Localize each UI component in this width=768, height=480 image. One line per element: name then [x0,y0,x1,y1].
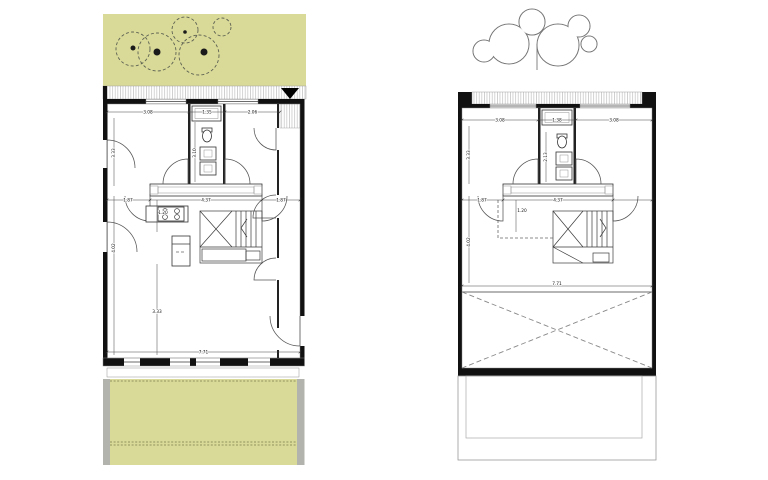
dim-core-height: 2.13 [543,152,549,162]
dim-lower-height: 4.02 [111,243,117,253]
tree-outline [473,9,597,70]
garden-bottom [110,379,297,465]
plot-outline [458,376,656,460]
sink [200,147,216,160]
door-arc [254,128,276,150]
interior-outline-upper [462,108,652,368]
dim-mid-center: 4.37 [553,198,563,204]
dimensions-ground-floor: 3.08 1.35 2.06 3.33 3.10 1.87 4.37 1.87 … [106,110,302,356]
void-double-height [462,292,652,368]
partition-band [150,184,262,196]
deck-end-wall [103,86,107,99]
hall-wall [277,104,279,358]
dim-living-height: 3.33 [152,309,162,315]
ground-floor-plan: 3.08 1.35 2.06 3.33 3.10 1.87 4.37 1.87 … [103,14,306,465]
door-arc [163,159,188,184]
tree-trunk-dot [201,49,208,56]
dim-room-height: 3.33 [466,150,472,160]
dim-mid-depth: 1.20 [158,210,168,216]
bathroom-core [188,104,226,184]
dim-core-height: 3.10 [192,148,198,158]
kitchen [146,206,190,266]
dim-lower-height: 4.02 [466,237,472,247]
interior-outline [108,104,301,358]
tree-trunk-dot [183,30,187,34]
sink [556,167,572,180]
entry-hall-deck [280,104,300,128]
layout-guide-dashed [498,200,553,238]
dim-mid-left: 1.87 [477,198,487,204]
threshold [107,368,299,377]
upper-floor-plan: 3.08 1.38 3.08 3.33 2.13 1.87 4.37 1.20 … [458,9,656,460]
stair-landing [202,249,246,261]
stair-direction-arrow [600,219,606,237]
dim-top-mid: 1.38 [552,118,562,124]
toilet [558,136,567,148]
dim-top-left: 3.08 [495,118,505,124]
garden-footprint-outline [458,376,656,460]
sink [556,152,572,165]
floor-plan-sheet: 3.08 1.35 2.06 3.33 3.10 1.87 4.37 1.87 … [0,0,768,480]
entry-deck [103,86,306,99]
dim-top-right: 3.08 [609,118,619,124]
stair-treads [587,211,607,247]
dim-mid-right: 1.87 [276,198,286,204]
stairs [200,211,262,263]
dim-mid-depth: 1.20 [517,208,527,214]
void-cross [462,292,652,368]
retaining-wall-right [297,379,305,465]
balcony-deck [472,92,642,104]
garden-outline [466,376,642,438]
door-arc [576,159,601,184]
stairs-upper [498,200,613,263]
kitchen-unit [172,236,190,266]
door-arc [253,195,276,218]
dim-room-height: 3.33 [111,148,117,158]
sink [200,162,216,175]
dim-total-width: 7.71 [199,350,209,356]
tree-trunk-dot [131,46,136,51]
door-arc [513,159,538,184]
door-arc [225,159,250,184]
doors [107,128,300,346]
tree-trunk-dot [154,49,161,56]
dimensions-upper-floor: 3.08 1.38 3.08 3.33 2.13 1.87 4.37 1.20 … [461,118,654,288]
toilet [203,130,212,142]
dim-top-right: 2.06 [248,110,258,116]
partition-band-upper [503,184,613,196]
dim-mid-left: 1.87 [123,198,133,204]
dim-top-left: 3.08 [143,110,153,116]
entry-door-arc [270,316,300,346]
dim-mid-center: 4.37 [201,198,211,204]
dim-total-width: 7.71 [552,281,562,287]
retaining-wall-left [103,379,110,465]
floor-plans-drawing: 3.08 1.35 2.06 3.33 3.10 1.87 4.37 1.87 … [0,0,768,480]
dim-top-mid: 1.35 [202,110,212,116]
door-arc [254,258,276,280]
